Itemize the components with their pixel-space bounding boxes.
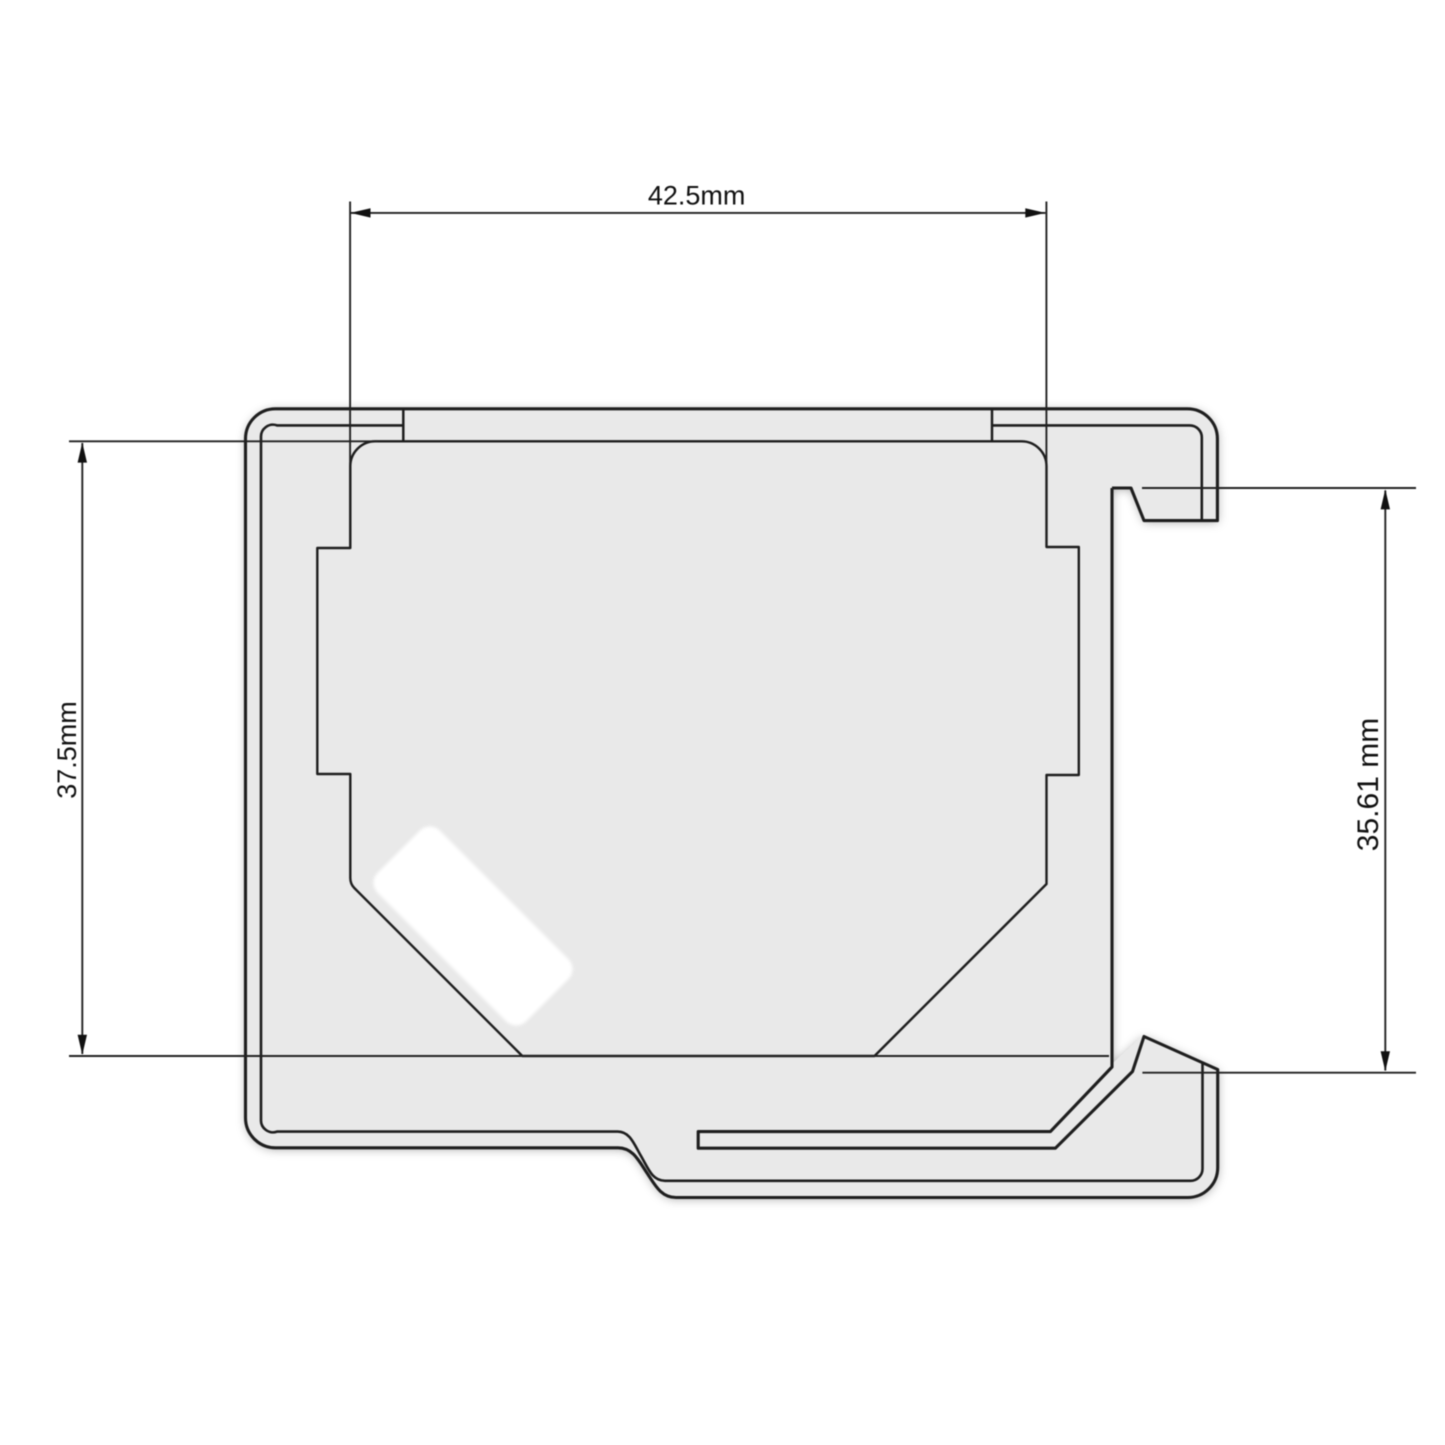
svg-text:35.61 mm: 35.61 mm — [1352, 718, 1385, 851]
svg-text:42.5mm: 42.5mm — [648, 180, 746, 210]
svg-text:37.5mm: 37.5mm — [52, 701, 82, 799]
